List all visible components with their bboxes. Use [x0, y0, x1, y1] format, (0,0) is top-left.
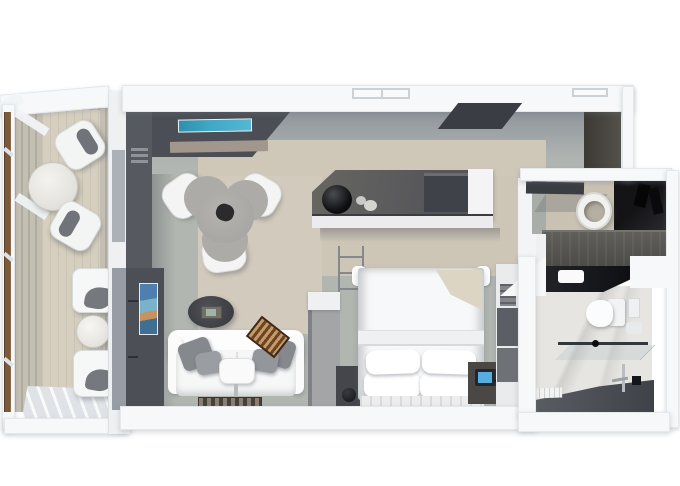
shelf-line: [128, 300, 138, 302]
tray-item: [206, 309, 216, 316]
balcony-window-glass: [112, 150, 125, 242]
glass-shower-screen: [558, 342, 648, 345]
partition-cabinet-top: [308, 292, 340, 310]
vessel-sink-basin: [584, 201, 605, 222]
tv-art-panel: [139, 283, 158, 335]
toilet: [586, 300, 613, 327]
tv-screen: [178, 118, 252, 132]
floor-plan-render: [0, 0, 680, 486]
credenza-counter-end: [468, 169, 493, 220]
console-shelf: [170, 140, 268, 153]
phone-screen: [478, 372, 492, 383]
chair-cushion: [74, 126, 101, 157]
ice-bucket: [322, 185, 352, 214]
shower-door-handle: [592, 340, 599, 347]
wing-right-wall: [666, 170, 679, 428]
bath-mat: [534, 388, 562, 399]
ottoman-tray-table: [219, 358, 255, 384]
vent-slat: [131, 154, 148, 157]
balcony-side-table: [76, 315, 110, 348]
bathroom-bottom-wall: [518, 412, 670, 432]
chair-cushion: [56, 208, 82, 239]
balcony-wood-handrail: [4, 112, 11, 412]
bed-pillow: [366, 349, 421, 375]
entry-wardrobe: [584, 110, 622, 172]
towel-holder: [626, 322, 642, 334]
shelf-line: [128, 356, 138, 358]
credenza-shadow: [320, 228, 500, 242]
bed-pillow: [364, 372, 420, 399]
balcony-door-glass: [112, 268, 126, 410]
minibar-cabinet: [424, 173, 472, 212]
table-lamp: [342, 388, 356, 402]
bed-runner-band: [358, 330, 484, 346]
cabin-bottom-wall: [120, 406, 536, 430]
wing-top-wall: [520, 168, 672, 181]
top-wall-window: [352, 88, 410, 99]
bathroom-top-wall: [630, 256, 670, 288]
flush-plate: [628, 298, 640, 318]
vent-slat: [131, 160, 148, 163]
wall-shelf: [526, 181, 584, 194]
media-wall-column: [126, 112, 152, 270]
shower-valve: [632, 376, 641, 385]
cabin-right-wall: [622, 86, 634, 181]
railing-rung: [340, 256, 362, 258]
top-wall-window: [572, 88, 608, 97]
bathroom-sink: [558, 270, 584, 283]
shower-glass-reflection: [555, 345, 656, 360]
ottoman-pedestal: [234, 384, 238, 397]
glassware: [364, 200, 377, 211]
credenza-front: [312, 214, 493, 228]
vent-slat: [131, 148, 148, 151]
bathroom-left-wall: [518, 256, 536, 416]
